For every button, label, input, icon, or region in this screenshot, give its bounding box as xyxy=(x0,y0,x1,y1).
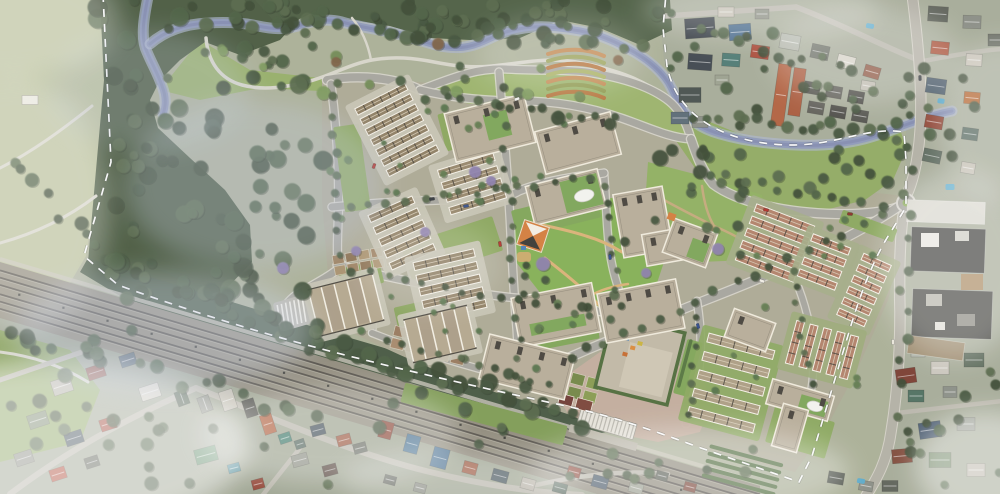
aerial-render-canvas xyxy=(0,0,1000,494)
layer-haze xyxy=(0,0,1000,494)
global-wash xyxy=(0,0,1000,494)
masterplan-aerial-view xyxy=(0,0,1000,494)
